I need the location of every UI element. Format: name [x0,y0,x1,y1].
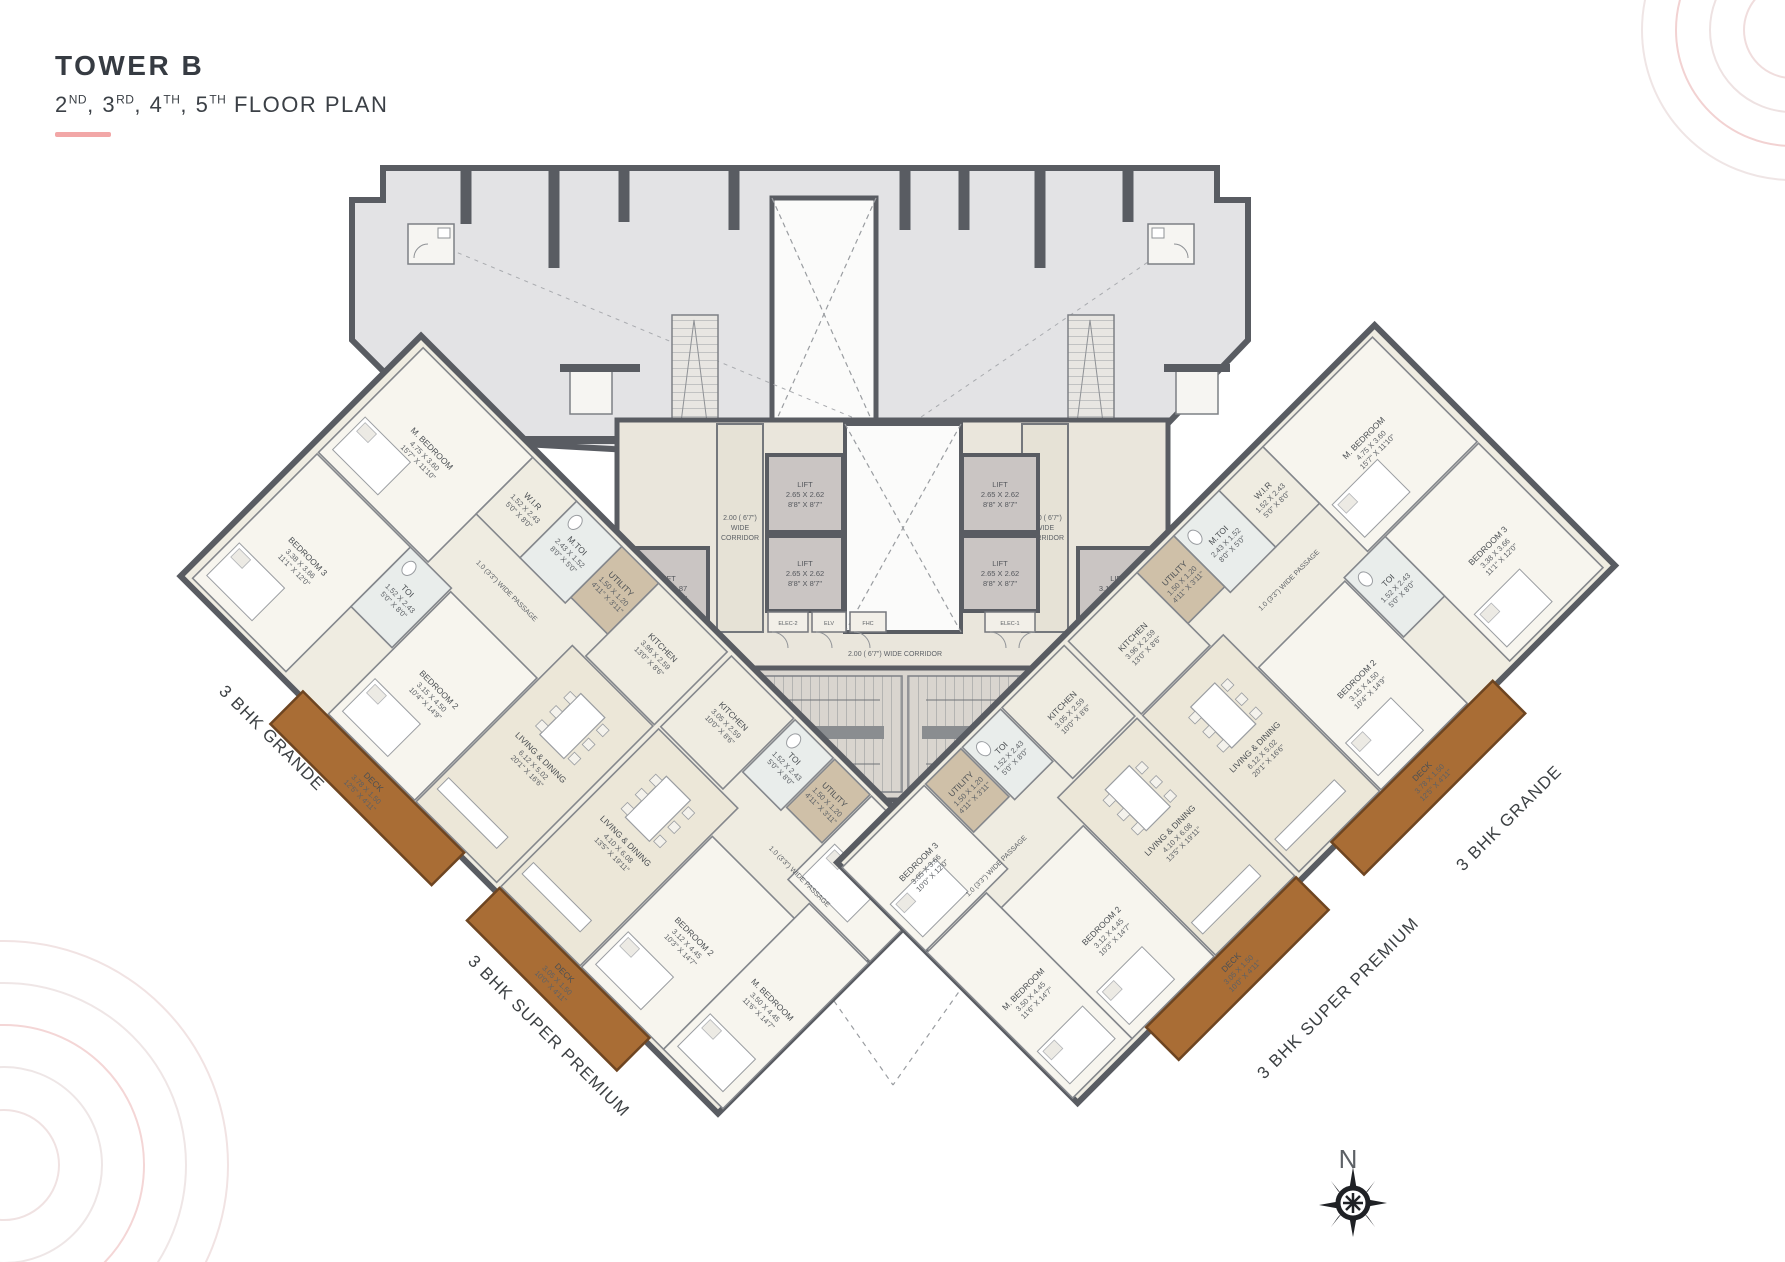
subtitle-text: FLOOR PLAN [226,92,388,117]
subtitle-sup: TH [163,93,180,107]
subtitle-text: 2 [55,92,69,117]
subtitle-sup: RD [116,93,134,107]
decorative-rings-bottom-left [0,941,228,1262]
svg-text:2.65 X 2.62: 2.65 X 2.62 [786,490,824,499]
svg-text:ELV: ELV [824,621,834,627]
compass-rose-icon [1319,1167,1387,1237]
svg-text:ELEC-2: ELEC-2 [778,621,797,627]
svg-text:LIFT: LIFT [797,480,813,489]
svg-text:LIFT: LIFT [992,559,1008,568]
floor-plan-page: { "header": { "title": "TOWER B", "subti… [0,0,1785,1262]
podium-toilet-right [1176,368,1218,414]
compass: N [1319,1144,1387,1237]
page-title: TOWER B [55,50,388,82]
podium-bathroom-left [408,224,454,264]
svg-text:2.65 X 2.62: 2.65 X 2.62 [981,569,1019,578]
accent-underline [55,132,111,137]
svg-text:FHC: FHC [862,621,873,627]
svg-text:2.65 X 2.62: 2.65 X 2.62 [786,569,824,578]
subtitle-sup: TH [209,93,226,107]
svg-text:CORRIDOR: CORRIDOR [721,535,759,542]
subtitle-text: , 5 [180,92,209,117]
svg-text:2.65 X 2.62: 2.65 X 2.62 [981,490,1019,499]
corridor-bottom-label: 2.00 ( 6'7") WIDE CORRIDOR [848,651,942,658]
compass-north-label: N [1339,1144,1358,1174]
decorative-rings-top-right [1642,0,1785,180]
subtitle-sup: ND [69,93,87,107]
podium-toilet-left [570,368,612,414]
floor-plan-drawing: 2.00 ( 6'7") WIDE CORRIDOR 2.00 ( 6'7") … [0,0,1785,1262]
svg-text:LIFT: LIFT [992,480,1008,489]
subtitle-text: , 3 [87,92,116,117]
label-right-grande: 3 BHK GRANDE [1453,762,1566,875]
svg-text:2.00 ( 6'7"): 2.00 ( 6'7") [723,515,757,522]
svg-text:8'8" X 8'7": 8'8" X 8'7" [983,500,1017,509]
subtitle-text: , 4 [134,92,163,117]
svg-text:8'8" X 8'7": 8'8" X 8'7" [788,579,822,588]
svg-text:WIDE: WIDE [731,525,750,532]
page-subtitle: 2ND, 3RD, 4TH, 5TH FLOOR PLAN [55,92,388,118]
title-block: TOWER B 2ND, 3RD, 4TH, 5TH FLOOR PLAN [55,50,388,137]
svg-text:ELEC-1: ELEC-1 [1000,621,1019,627]
svg-text:8'8" X 8'7": 8'8" X 8'7" [983,579,1017,588]
podium-bathroom-right [1148,224,1194,264]
svg-text:8'8" X 8'7": 8'8" X 8'7" [788,500,822,509]
svg-text:LIFT: LIFT [797,559,813,568]
